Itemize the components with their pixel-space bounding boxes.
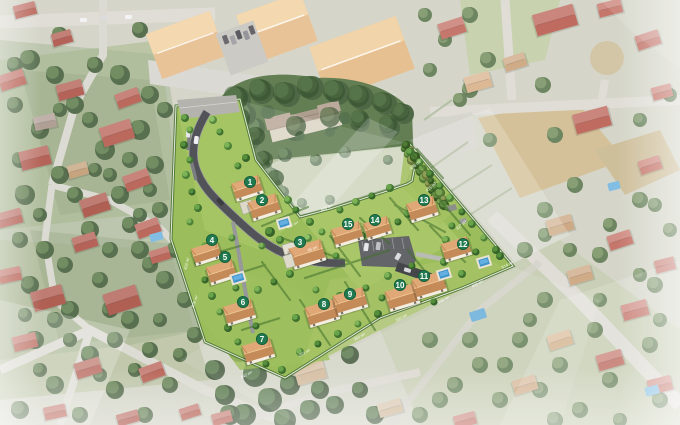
svg-text:9: 9 (348, 290, 353, 299)
svg-text:6: 6 (241, 298, 246, 307)
svg-text:7: 7 (260, 335, 265, 344)
svg-text:15: 15 (344, 220, 353, 229)
svg-text:5: 5 (223, 253, 228, 262)
svg-text:14: 14 (371, 216, 380, 225)
svg-text:4: 4 (210, 236, 215, 245)
svg-text:3: 3 (298, 238, 303, 247)
svg-text:1: 1 (248, 178, 253, 187)
svg-text:12: 12 (459, 240, 468, 249)
svg-text:10: 10 (396, 281, 405, 290)
svg-text:2: 2 (260, 196, 265, 205)
svg-text:11: 11 (420, 272, 429, 281)
svg-text:13: 13 (420, 196, 429, 205)
svg-text:8: 8 (322, 300, 327, 309)
